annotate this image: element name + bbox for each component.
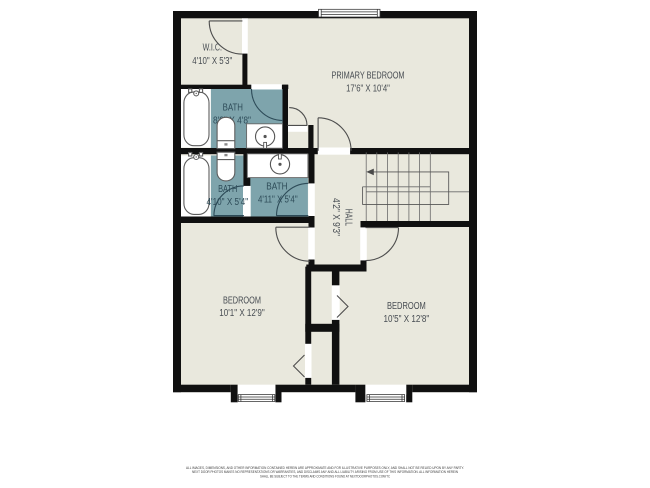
svg-text:HALL: HALL: [342, 209, 353, 227]
svg-text:BATH: BATH: [266, 182, 287, 193]
svg-text:17'6" X 10'4": 17'6" X 10'4": [346, 84, 390, 95]
svg-text:PRIMARY BEDROOM: PRIMARY BEDROOM: [331, 71, 404, 82]
svg-text:BATH: BATH: [223, 103, 243, 114]
svg-text:10'5" X 12'8": 10'5" X 12'8": [384, 314, 430, 325]
svg-text:4'10" X 5'3": 4'10" X 5'3": [192, 56, 232, 67]
svg-text:BEDROOM: BEDROOM: [387, 301, 426, 312]
svg-text:4'10" X 5'4": 4'10" X 5'4": [207, 197, 249, 208]
svg-text:W.I.C.: W.I.C.: [203, 43, 222, 54]
svg-text:BEDROOM: BEDROOM: [223, 295, 261, 306]
svg-text:SHALL BE SUBJECT TO THE TERMS: SHALL BE SUBJECT TO THE TERMS AND CONDIT…: [260, 473, 390, 478]
svg-text:BATH: BATH: [218, 184, 237, 195]
svg-text:4'2" X 9'3": 4'2" X 9'3": [330, 198, 341, 236]
svg-text:10'1" X 12'9": 10'1" X 12'9": [219, 308, 265, 319]
svg-text:4'11" X 5'4": 4'11" X 5'4": [258, 195, 298, 206]
